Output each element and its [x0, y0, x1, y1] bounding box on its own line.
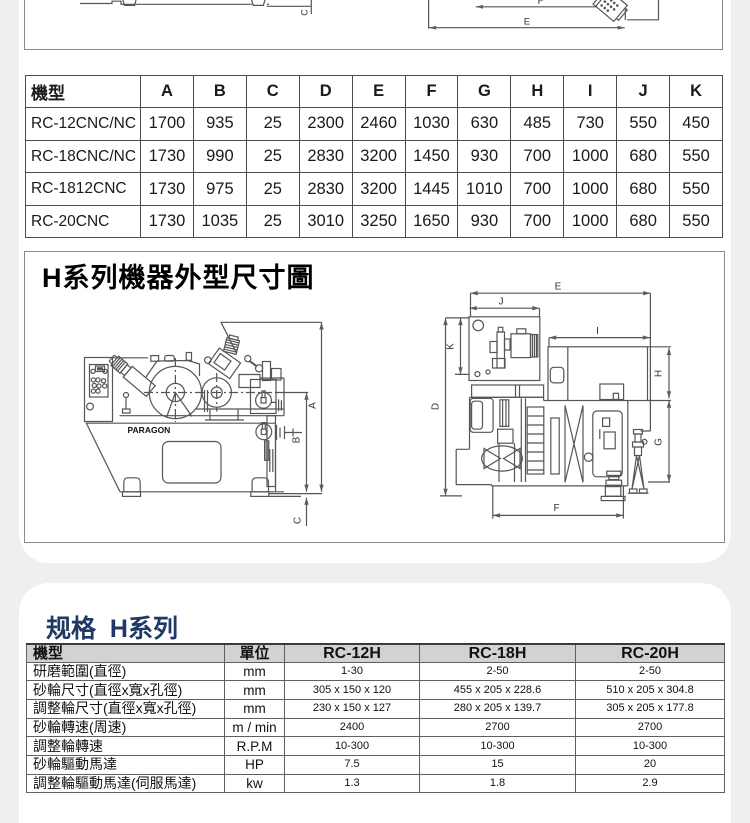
svg-text:E: E: [524, 17, 530, 28]
svg-text:K: K: [446, 343, 457, 350]
svg-text:C: C: [300, 9, 310, 16]
svg-text:F: F: [538, 0, 544, 7]
svg-text:E: E: [555, 282, 562, 293]
svg-text:C: C: [293, 517, 304, 524]
svg-text:G: G: [654, 438, 665, 446]
svg-text:H: H: [654, 370, 665, 377]
svg-text:B: B: [292, 436, 303, 443]
svg-text:I: I: [596, 326, 599, 337]
svg-text:J: J: [499, 297, 504, 308]
svg-text:F: F: [553, 503, 559, 514]
svg-text:PARAGON: PARAGON: [128, 425, 171, 435]
svg-text:A: A: [308, 402, 319, 409]
svg-text:D: D: [431, 403, 442, 410]
